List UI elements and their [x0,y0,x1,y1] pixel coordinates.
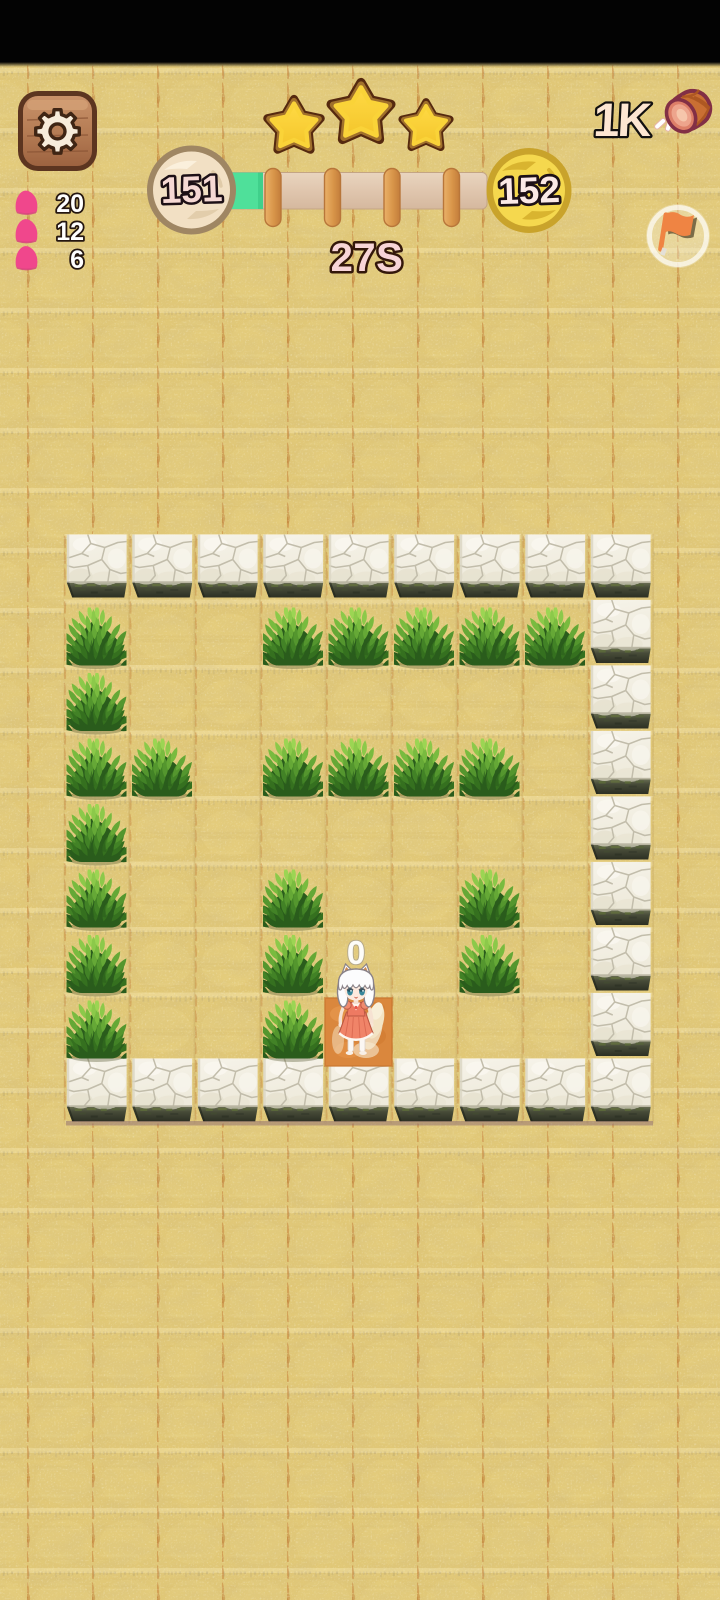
svg-text:20: 20 [56,190,84,218]
svg-text:1K: 1K [592,93,653,146]
svg-text:27S: 27S [331,236,404,280]
svg-text:6: 6 [70,246,84,274]
svg-text:0: 0 [347,934,365,971]
svg-text:151: 151 [160,168,223,211]
svg-text:12: 12 [56,218,84,246]
svg-text:152: 152 [497,169,560,212]
